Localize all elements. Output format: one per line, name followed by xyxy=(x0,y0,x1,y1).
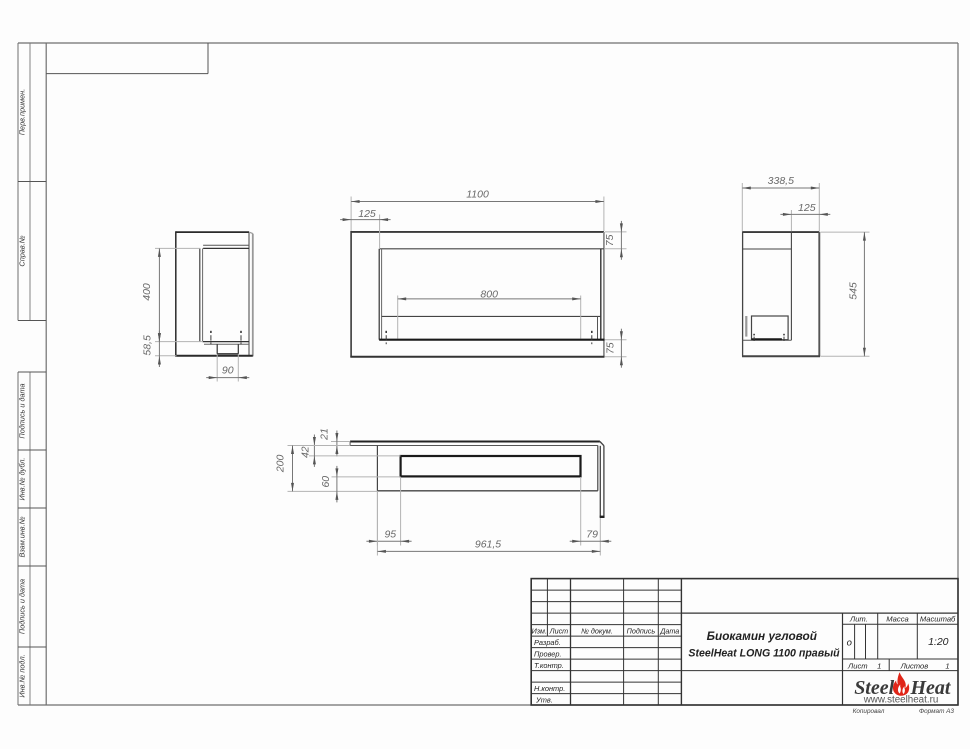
svg-text:Перв.примен.: Перв.примен. xyxy=(18,89,27,135)
svg-text:Формат А3: Формат А3 xyxy=(919,708,954,715)
svg-text:Взам.инв.№: Взам.инв.№ xyxy=(18,516,27,557)
svg-text:Лист: Лист xyxy=(549,626,569,635)
svg-text:Подпись: Подпись xyxy=(627,626,656,635)
svg-text:Подпись и дата: Подпись и дата xyxy=(18,579,27,634)
svg-text:1:20: 1:20 xyxy=(928,636,949,648)
svg-text:Инв.№ подл.: Инв.№ подл. xyxy=(18,654,27,697)
svg-text:Утв.: Утв. xyxy=(535,696,553,705)
svg-text:Масса: Масса xyxy=(886,615,908,624)
svg-text:Провер.: Провер. xyxy=(534,650,562,659)
svg-text:о: о xyxy=(847,638,852,649)
svg-text:75: 75 xyxy=(604,234,616,246)
svg-text:21: 21 xyxy=(318,428,330,441)
svg-text:42: 42 xyxy=(300,446,312,458)
svg-text:Копировал: Копировал xyxy=(853,708,885,715)
svg-text:545: 545 xyxy=(848,282,860,300)
svg-text:90: 90 xyxy=(222,365,234,377)
svg-text:Н.контр.: Н.контр. xyxy=(534,684,565,693)
svg-text:Т.контр.: Т.контр. xyxy=(534,661,564,670)
svg-text:Изм.: Изм. xyxy=(532,626,547,635)
svg-text:Подпись и дата: Подпись и дата xyxy=(18,383,27,438)
svg-text:1: 1 xyxy=(945,662,949,671)
svg-text:1100: 1100 xyxy=(466,188,489,200)
svg-text:Масштаб: Масштаб xyxy=(920,615,956,624)
svg-text:800: 800 xyxy=(480,288,498,300)
svg-text:www.steelheat.ru: www.steelheat.ru xyxy=(863,695,939,706)
svg-text:60: 60 xyxy=(320,476,332,488)
svg-text:125: 125 xyxy=(798,202,816,214)
svg-text:125: 125 xyxy=(358,208,376,220)
svg-text:58,5: 58,5 xyxy=(141,335,153,356)
svg-text:75: 75 xyxy=(605,342,617,354)
svg-text:Справ.№: Справ.№ xyxy=(18,235,27,266)
svg-text:961,5: 961,5 xyxy=(475,539,501,551)
svg-text:Дата: Дата xyxy=(659,626,679,635)
svg-text:1: 1 xyxy=(877,662,881,671)
svg-text:Лист: Лист xyxy=(847,662,868,671)
svg-text:№ докум.: № докум. xyxy=(581,626,613,635)
svg-text:SteelHeat LONG 1100 правый: SteelHeat LONG 1100 правый xyxy=(688,648,840,660)
svg-text:200: 200 xyxy=(275,454,287,473)
svg-text:Инв.№ дубл.: Инв.№ дубл. xyxy=(18,458,27,501)
svg-text:400: 400 xyxy=(141,283,153,301)
svg-text:338,5: 338,5 xyxy=(768,175,794,187)
svg-text:Разраб.: Разраб. xyxy=(534,638,561,647)
svg-text:95: 95 xyxy=(384,529,396,541)
svg-text:Биокамин угловой: Биокамин угловой xyxy=(707,629,817,643)
svg-text:79: 79 xyxy=(586,529,598,541)
svg-text:Листов: Листов xyxy=(900,662,929,671)
svg-text:Лит.: Лит. xyxy=(849,615,868,624)
